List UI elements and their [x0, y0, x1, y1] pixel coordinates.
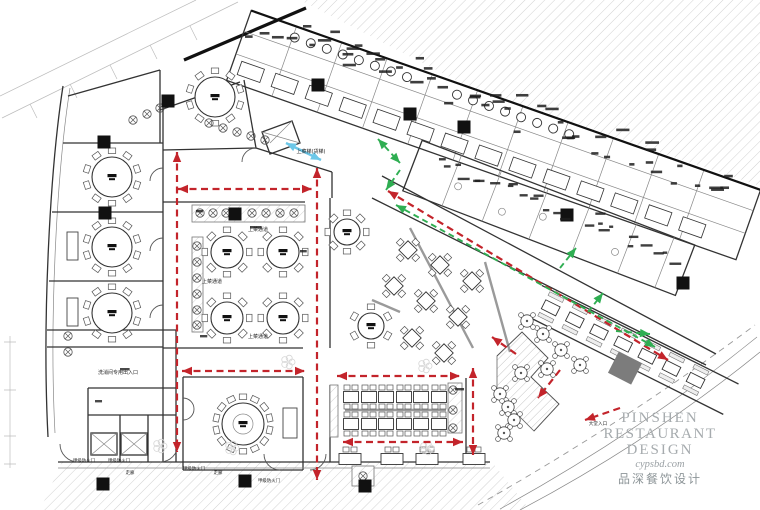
terrace-table	[513, 365, 530, 382]
plan-label: 上菜通道	[248, 333, 268, 340]
table	[339, 447, 361, 465]
column	[98, 136, 111, 149]
round-table	[83, 284, 140, 342]
table	[414, 385, 429, 409]
decor-flower	[154, 439, 167, 453]
terrace-table	[535, 326, 552, 343]
column	[312, 79, 325, 92]
plant	[261, 136, 269, 144]
table	[344, 385, 359, 409]
sideboard	[67, 298, 78, 326]
dimension-line	[0, 0, 196, 96]
column	[239, 475, 252, 488]
service-counter	[330, 385, 338, 437]
red-circulation-arrow	[182, 367, 305, 375]
red-circulation-arrow	[585, 408, 620, 421]
round-table	[325, 210, 369, 254]
plant	[129, 116, 137, 124]
plan-label: 走廊	[214, 469, 223, 476]
decor-flower	[419, 359, 432, 373]
round-table	[83, 148, 140, 206]
watermark-line3: DESIGN	[627, 442, 694, 458]
plan-label: 上菜梯(货梯)	[297, 148, 326, 155]
table	[381, 447, 403, 465]
dimension-line-left	[4, 336, 16, 468]
red-circulation-arrow	[469, 368, 477, 455]
table	[362, 385, 377, 409]
plan-label: 甲级防火门	[73, 457, 95, 464]
red-circulation-arrow	[178, 185, 312, 193]
plan-label: 甲级防火门	[183, 465, 205, 472]
terrace-table	[553, 342, 570, 359]
plant	[64, 332, 72, 340]
table	[432, 412, 447, 436]
column	[229, 208, 242, 221]
plan-label: 甲级防火门	[108, 457, 130, 464]
table	[379, 412, 394, 436]
red-circulation-arrow	[313, 168, 321, 480]
column	[677, 277, 690, 290]
column	[458, 121, 471, 134]
food-elevator-x	[262, 121, 300, 143]
plan-label: 洗消间专用出入口	[98, 369, 138, 376]
red-circulation-arrow	[337, 372, 460, 380]
hatch-area-sidewalk	[40, 462, 530, 510]
table	[397, 412, 412, 436]
table	[432, 385, 447, 409]
decor-flower	[282, 355, 295, 369]
floor-plan-canvas: 上菜通道上菜通道上菜通道上菜梯(货梯)洗消间专用出入口甲级防火门甲级防火门甲级防…	[0, 0, 760, 510]
plan-label: 走廊	[126, 469, 135, 476]
planting	[64, 104, 589, 480]
plan-label: 甲级防火门	[258, 477, 280, 484]
plant	[64, 348, 72, 356]
red-circulation-arrow	[173, 152, 181, 452]
table	[414, 412, 429, 436]
table	[362, 412, 377, 436]
table-diamond	[393, 319, 431, 357]
terrace-table	[519, 313, 536, 330]
hatch-area-roof	[300, 0, 760, 186]
column	[162, 95, 175, 108]
plant	[143, 110, 151, 118]
round-table	[202, 227, 252, 277]
elevator-x	[121, 433, 147, 455]
round-table	[202, 293, 252, 343]
column	[404, 108, 417, 121]
column	[99, 207, 112, 220]
watermark-site: cypsbd.com	[635, 459, 685, 470]
plan-label: 上菜通道	[248, 226, 268, 233]
elevator-x	[91, 433, 117, 455]
watermark-line1: PINSHEN	[621, 410, 698, 426]
plant	[233, 128, 241, 136]
green-circulation-arrow	[560, 248, 576, 268]
table	[397, 385, 412, 409]
column	[359, 480, 372, 493]
sideboard	[283, 408, 297, 438]
plant	[219, 124, 227, 132]
table	[344, 412, 359, 436]
round-table	[186, 68, 243, 126]
table-diamond	[421, 246, 459, 284]
green-circulation-arrow	[386, 170, 400, 190]
table-diamond	[425, 334, 463, 372]
diamond-tables	[375, 231, 491, 372]
table-diamond	[375, 267, 413, 305]
watermark: PINSHEN RESTAURANT DESIGN cypsbd.com 品深餐…	[604, 410, 717, 486]
round-table	[350, 304, 392, 348]
shaft	[608, 351, 642, 384]
floor-plan-page: 上菜通道上菜通道上菜通道上菜梯(货梯)洗消间专用出入口甲级防火门甲级防火门甲级防…	[0, 0, 760, 510]
table-diamond	[407, 282, 445, 320]
red-circulation-arrow	[388, 191, 668, 360]
round-table	[83, 218, 140, 276]
terrace-table	[496, 425, 513, 442]
red-circulation-arrow	[343, 438, 463, 446]
terrace-table	[539, 361, 556, 378]
table	[379, 385, 394, 409]
round-table	[213, 394, 273, 454]
terrace-table	[572, 357, 589, 374]
column	[97, 478, 110, 491]
table-diamond	[439, 298, 477, 336]
watermark-line2: RESTAURANT	[604, 426, 717, 442]
sideboard	[67, 232, 78, 260]
watermark-cn: 品深餐饮设计	[618, 471, 702, 486]
plan-label: 上菜通道	[202, 278, 222, 285]
green-circulation-arrow	[378, 139, 400, 163]
rect-tables	[339, 385, 485, 465]
